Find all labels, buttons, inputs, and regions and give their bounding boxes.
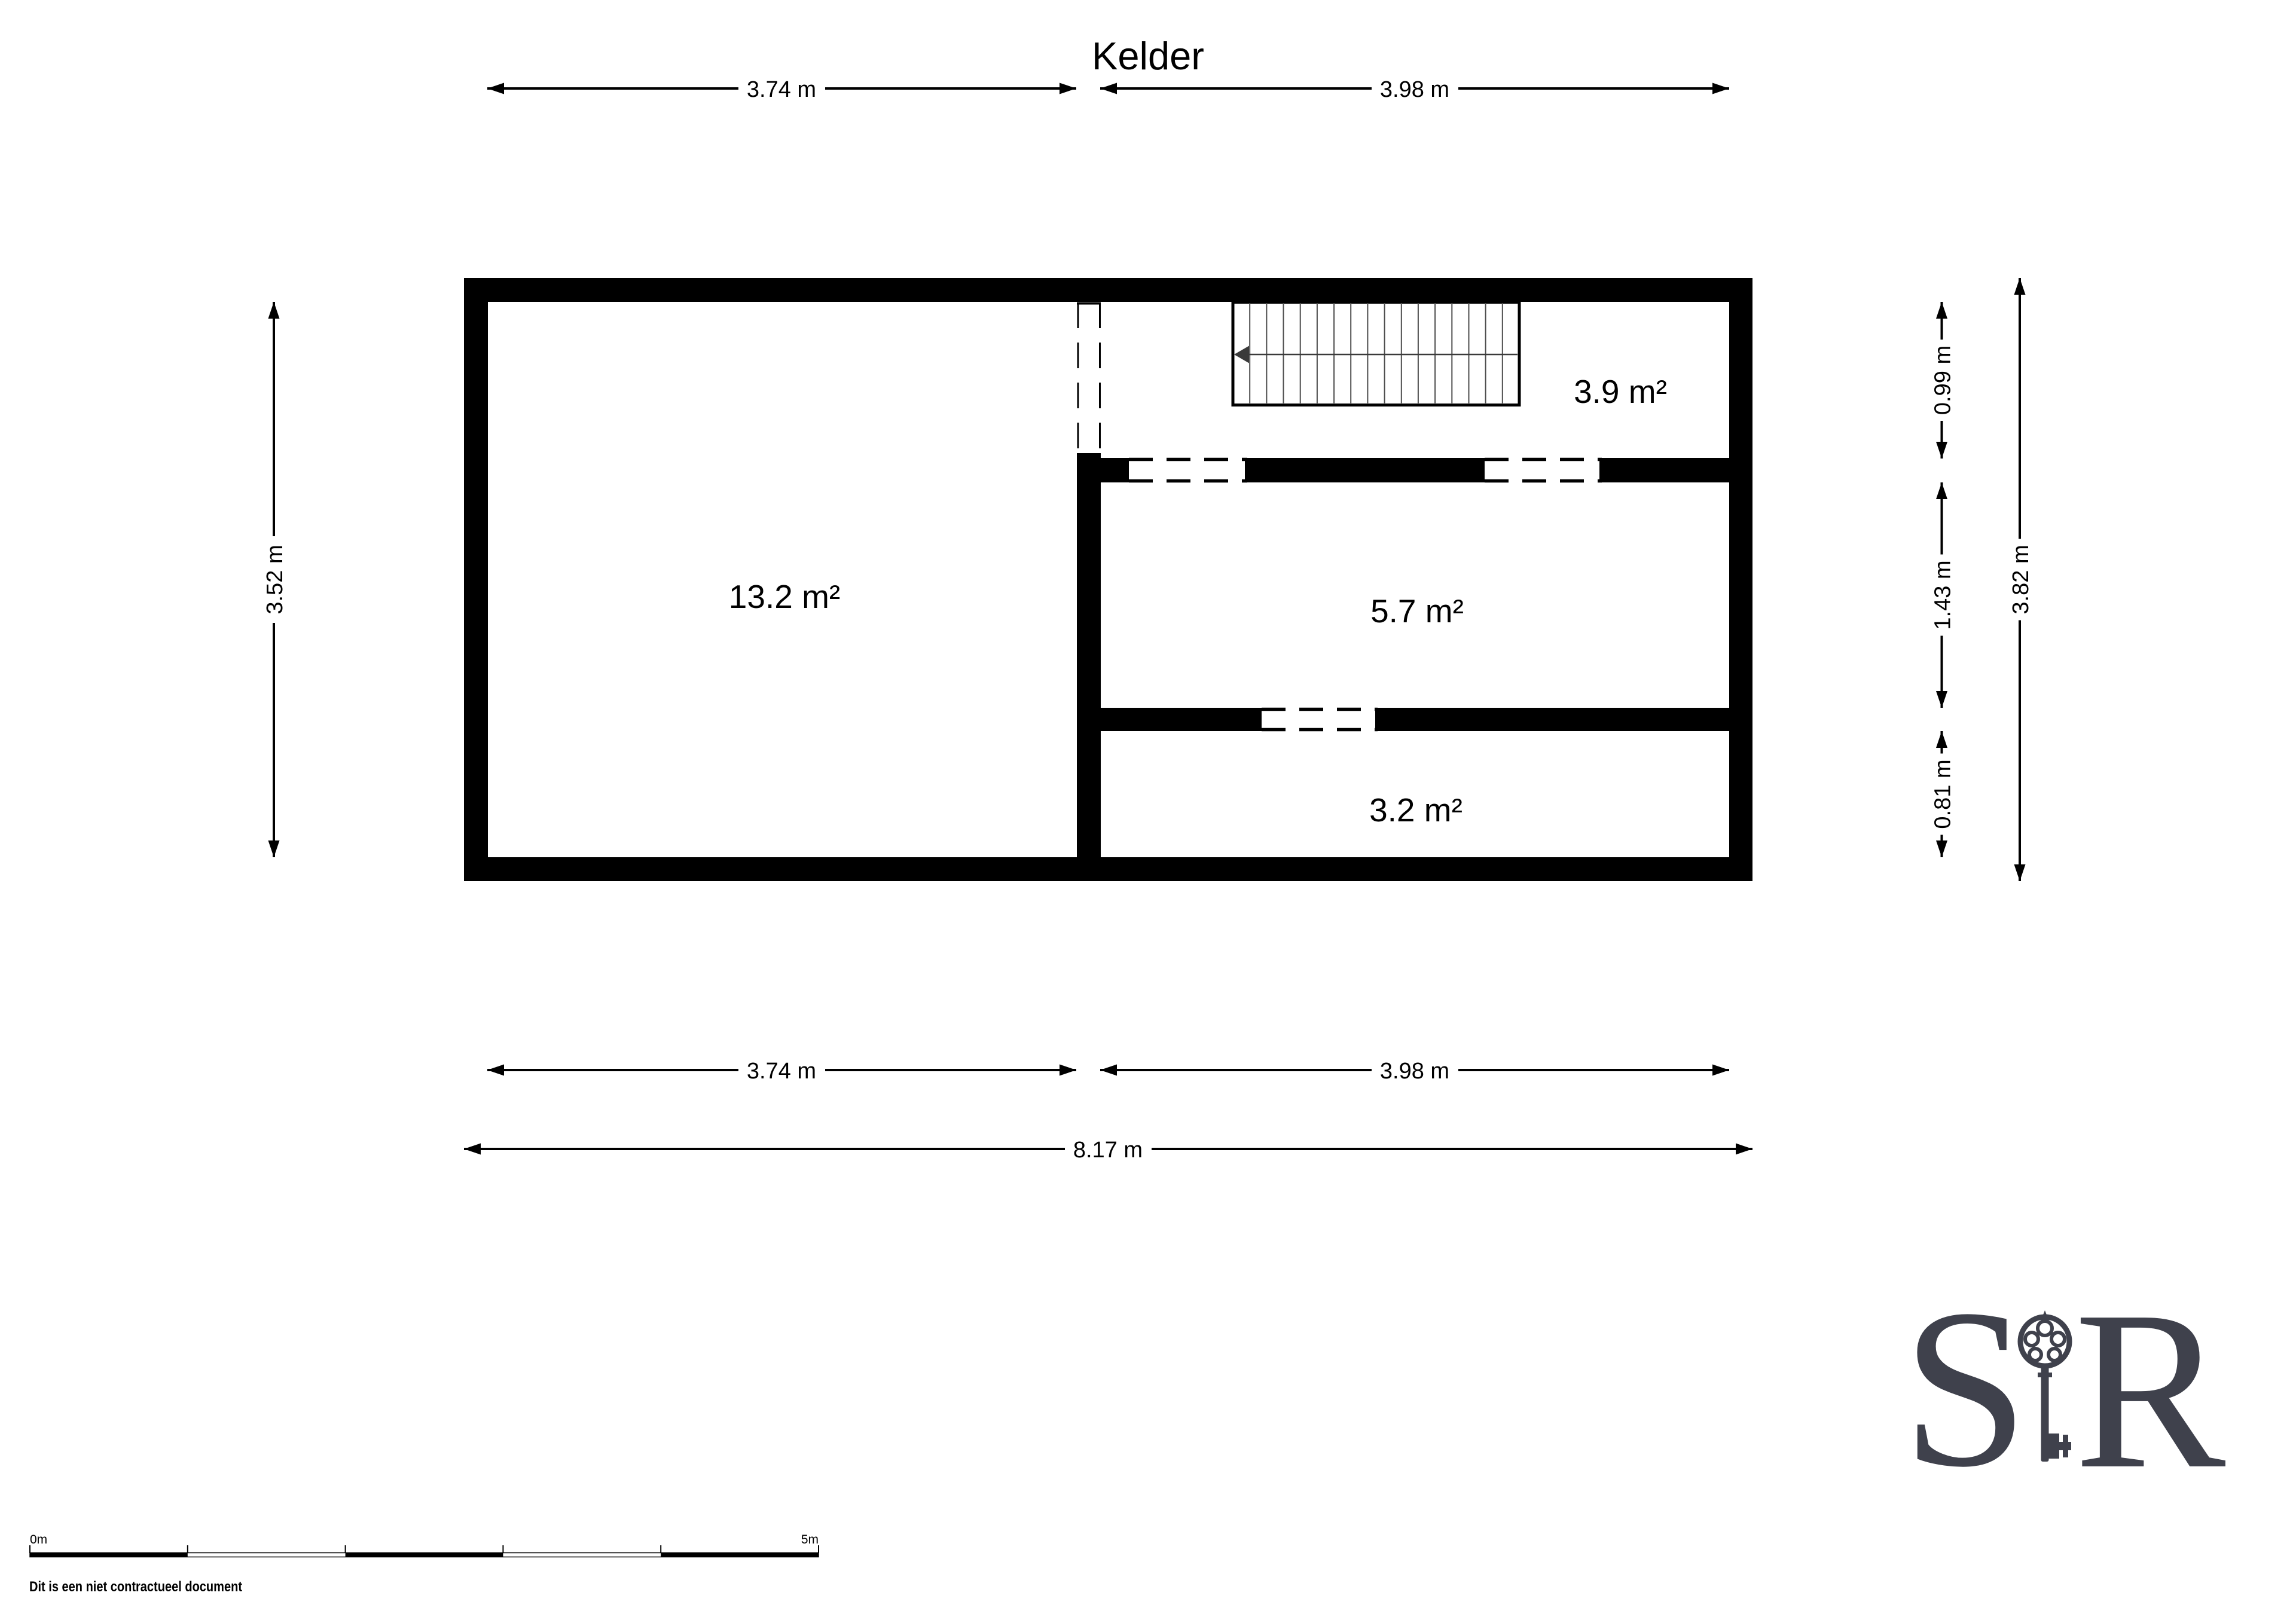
svg-text:0.81 m: 0.81 m [1931,759,1956,829]
svg-text:S: S [1902,1263,2028,1514]
svg-text:3.9 m²: 3.9 m² [1574,373,1667,410]
svg-text:3.82 m: 3.82 m [2008,545,2034,614]
svg-text:13.2 m²: 13.2 m² [729,578,840,615]
svg-text:3.98 m: 3.98 m [1380,77,1449,102]
svg-text:3.98 m: 3.98 m [1380,1059,1449,1084]
svg-text:R: R [2074,1264,2227,1516]
svg-text:8.17 m: 8.17 m [1073,1138,1143,1163]
svg-text:0m: 0m [30,1533,47,1546]
svg-text:3.74 m: 3.74 m [747,1059,816,1084]
svg-text:Dit is een niet contractueel d: Dit is een niet contractueel document [29,1579,242,1595]
svg-text:Kelder: Kelder [1092,34,1204,78]
svg-text:3.52 m: 3.52 m [262,545,288,614]
svg-text:5m: 5m [801,1533,819,1546]
svg-text:3.2 m²: 3.2 m² [1369,791,1463,829]
svg-text:3.74 m: 3.74 m [747,77,816,102]
svg-text:1.43 m: 1.43 m [1931,560,1956,629]
svg-text:0.99 m: 0.99 m [1931,346,1956,415]
svg-text:5.7 m²: 5.7 m² [1370,592,1464,629]
